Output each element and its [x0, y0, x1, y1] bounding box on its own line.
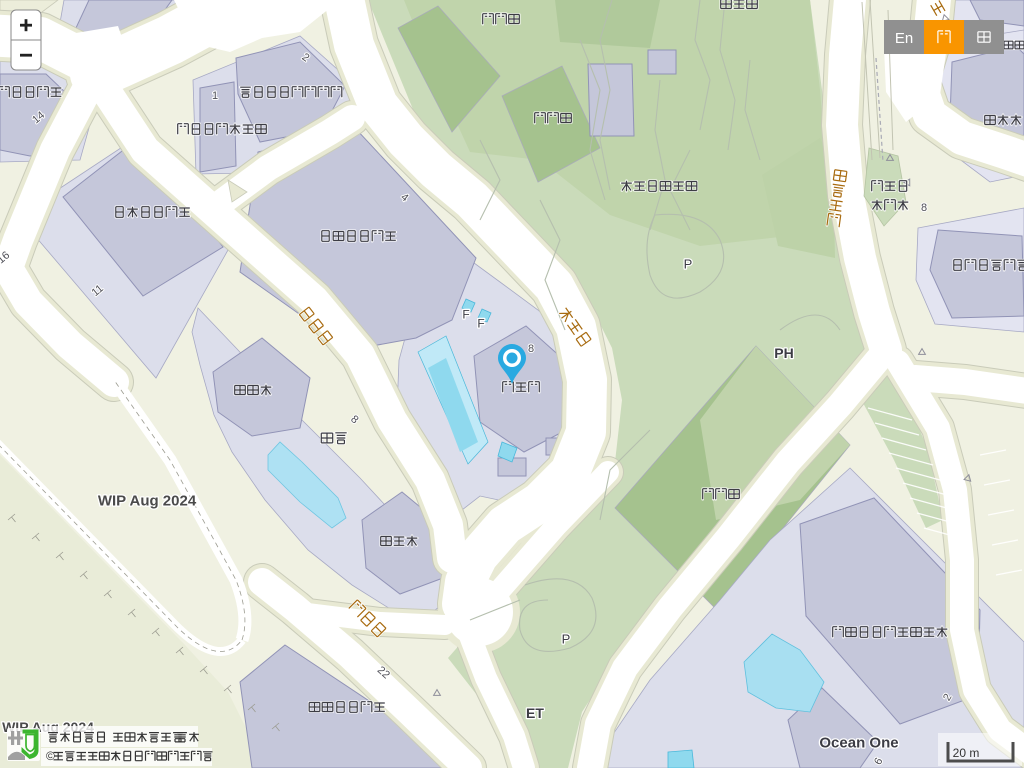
- svg-text:©: ©: [46, 749, 55, 763]
- svg-text:1: 1: [212, 90, 218, 102]
- svg-text:P: P: [684, 257, 693, 272]
- svg-text:ET: ET: [526, 705, 544, 721]
- svg-text:8: 8: [528, 343, 534, 355]
- svg-text:P: P: [562, 632, 571, 647]
- svg-text:PH: PH: [774, 345, 793, 361]
- svg-text:En: En: [895, 30, 913, 47]
- svg-text:20 m: 20 m: [953, 746, 980, 760]
- svg-text:F: F: [477, 316, 484, 330]
- svg-text:WIP Aug 2024: WIP Aug 2024: [98, 492, 197, 509]
- svg-text:Ocean One: Ocean One: [819, 734, 898, 751]
- svg-text:8: 8: [921, 202, 927, 214]
- svg-text:F: F: [462, 307, 469, 321]
